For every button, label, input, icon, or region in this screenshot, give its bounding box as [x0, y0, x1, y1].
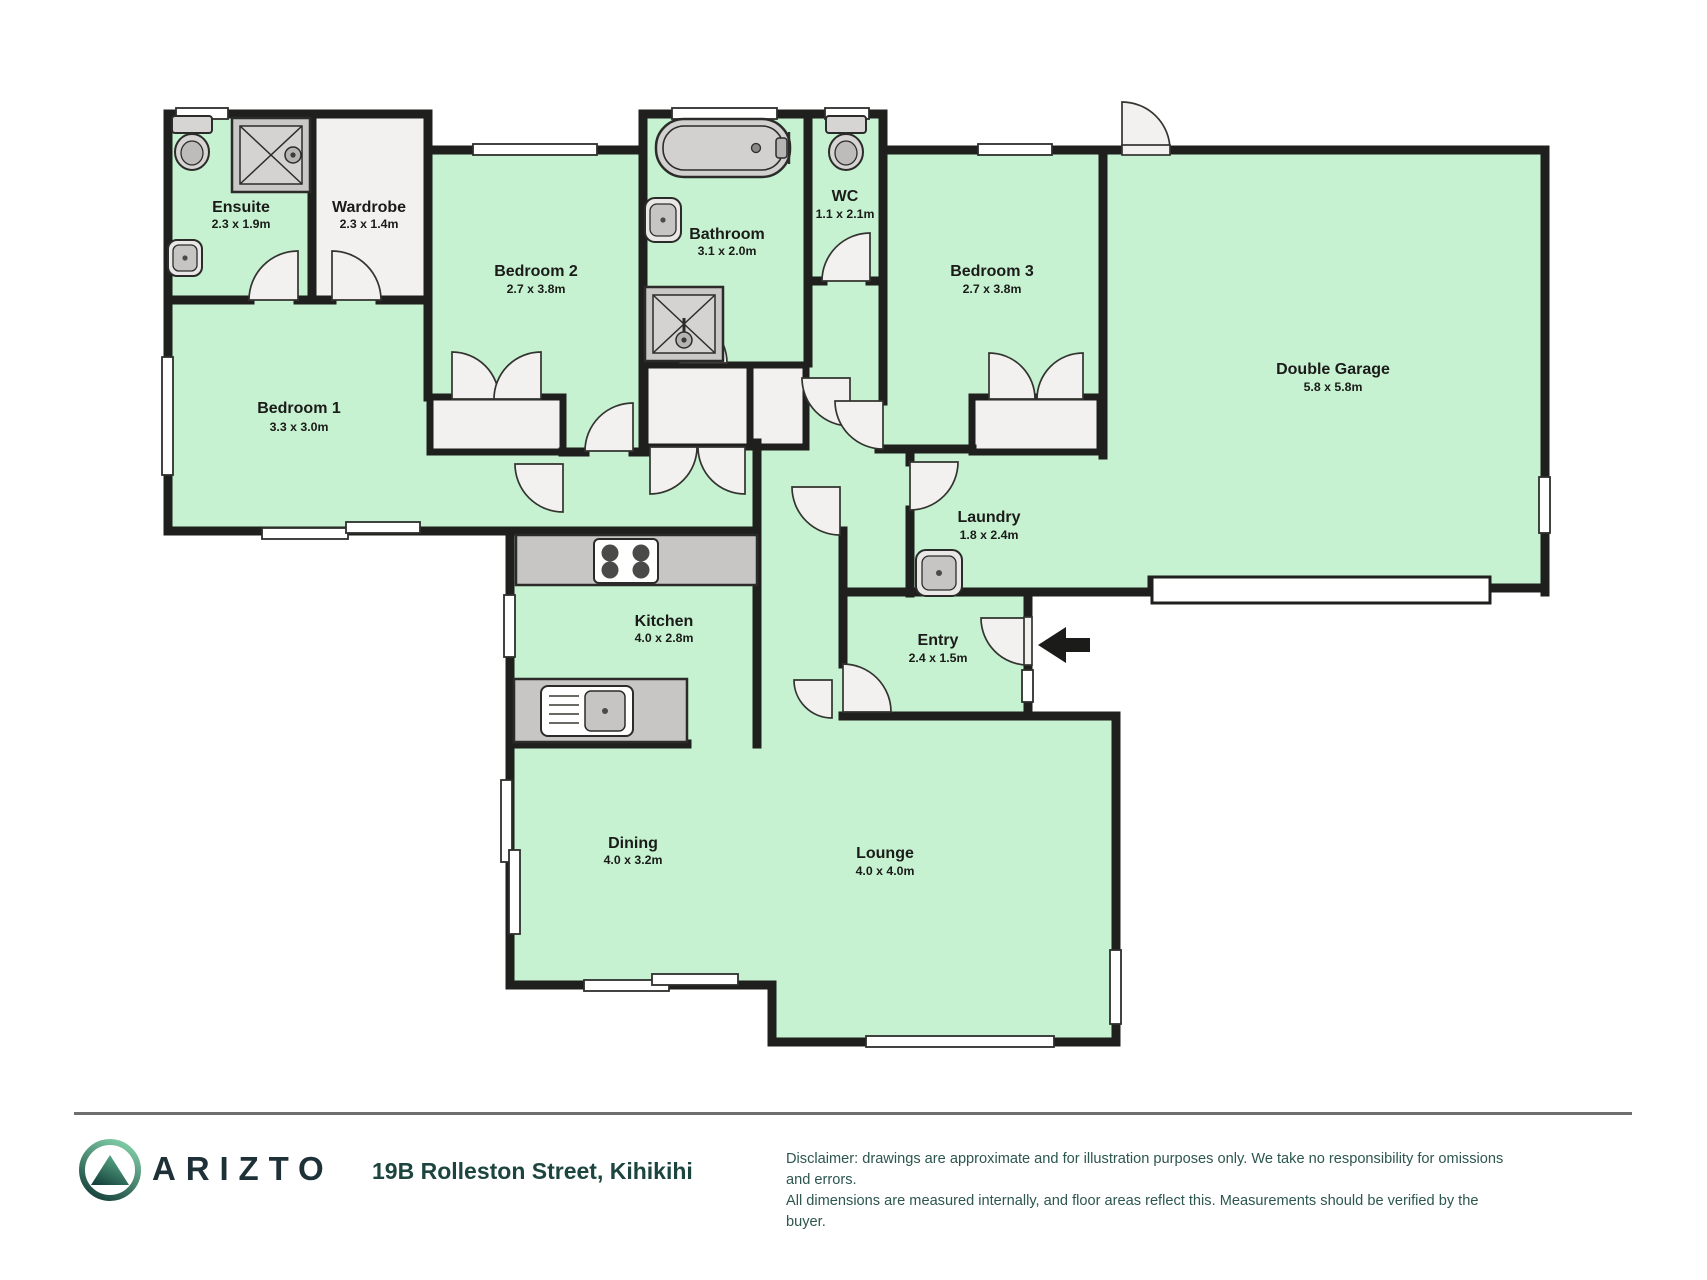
disclaimer-text: Disclaimer: drawings are approximate and…	[786, 1149, 1506, 1234]
window-lounge-bottom	[866, 1036, 1054, 1047]
floorplan-drawing: Ensuite 2.3 x 1.9m Wardrobe 2.3 x 1.4m B…	[0, 0, 1707, 1100]
room-label: Dining	[608, 835, 658, 852]
room-label: Lounge	[856, 845, 914, 862]
brand-wordmark: ARIZTO	[152, 1150, 334, 1188]
room-label: Ensuite	[212, 199, 270, 216]
room-label: Wardrobe	[332, 199, 406, 216]
room-dims: 3.3 x 3.0m	[270, 420, 329, 434]
window-bedroom1-bottom-a	[262, 528, 348, 539]
room-dims: 1.8 x 2.4m	[960, 528, 1019, 542]
entry-arrow-icon	[1038, 627, 1090, 663]
window-dining-bottom-b	[652, 974, 738, 985]
disclaimer-line-2: All dimensions are measured internally, …	[786, 1191, 1506, 1233]
window-bedroom3-top	[978, 144, 1052, 155]
room-dims: 2.7 x 3.8m	[507, 282, 566, 296]
window-bedroom1-left	[162, 357, 173, 475]
kitchen-sink-counter	[514, 679, 687, 742]
room-dims: 1.1 x 2.1m	[816, 207, 875, 221]
stove-counter	[516, 535, 757, 585]
footer-divider	[74, 1112, 1632, 1115]
floorplan-page: Ensuite 2.3 x 1.9m Wardrobe 2.3 x 1.4m B…	[0, 0, 1707, 1280]
room-label: Kitchen	[635, 613, 694, 630]
room-dims: 3.1 x 2.0m	[698, 244, 757, 258]
room-label: WC	[832, 188, 859, 205]
room-dims: 4.0 x 2.8m	[635, 631, 694, 645]
window-lounge-right	[1110, 950, 1121, 1024]
room-label: Bedroom 2	[494, 263, 578, 280]
toilet-icon	[826, 116, 866, 170]
room-label: Bedroom 3	[950, 263, 1034, 280]
room-label: Double Garage	[1276, 361, 1390, 378]
window-kitchen-left	[504, 595, 515, 657]
room-label: Bedroom 1	[257, 400, 341, 417]
listing-address: 19B Rolleston Street, Kihikihi	[372, 1158, 693, 1185]
window-bedroom2-top	[473, 144, 597, 155]
window-dining-left-b	[509, 850, 520, 934]
front-door-leaf	[1024, 617, 1032, 665]
bathtub-icon	[656, 119, 790, 177]
sink-icon	[168, 240, 202, 276]
door-garage-side	[1122, 102, 1170, 150]
disclaimer-line-1: Disclaimer: drawings are approximate and…	[786, 1149, 1506, 1191]
shower-icon	[645, 287, 723, 361]
garage-side-door-leaf	[1122, 145, 1170, 155]
room-dims: 2.4 x 1.5m	[909, 651, 968, 665]
window-garage-right	[1539, 477, 1550, 533]
hall-closet-box	[750, 365, 806, 447]
bedroom2-wardrobe-box	[430, 397, 563, 452]
window-entry-right	[1022, 670, 1033, 702]
window-bathroom-top	[672, 108, 777, 119]
room-dims: 2.7 x 3.8m	[963, 282, 1022, 296]
linen-cupboard-box	[645, 365, 750, 447]
room-dims: 2.3 x 1.9m	[212, 217, 271, 231]
toilet-icon	[172, 116, 212, 170]
garage-door	[1152, 577, 1490, 603]
room-label: Bathroom	[689, 226, 765, 243]
window-bedroom1-bottom-b	[346, 522, 420, 533]
room-label: Entry	[918, 632, 959, 649]
room-dims: 5.8 x 5.8m	[1304, 380, 1363, 394]
sink-icon	[645, 198, 681, 242]
room-dims: 4.0 x 3.2m	[604, 853, 663, 867]
room-label: Laundry	[957, 509, 1020, 526]
arizto-logo-icon	[78, 1138, 142, 1202]
room-dims: 2.3 x 1.4m	[340, 217, 399, 231]
laundry-tub-icon	[916, 550, 962, 596]
bedroom3-wardrobe-box	[972, 397, 1100, 452]
room-dims: 4.0 x 4.0m	[856, 864, 915, 878]
shower-icon	[232, 118, 310, 192]
